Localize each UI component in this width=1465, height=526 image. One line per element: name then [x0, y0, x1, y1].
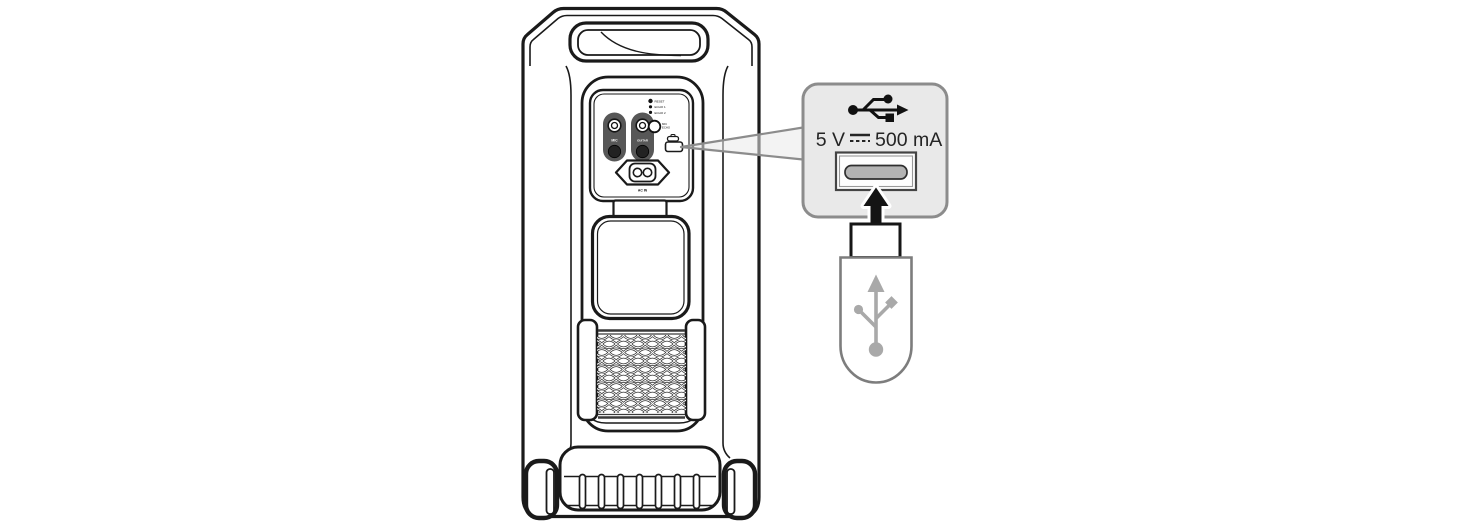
mic-jack-label: MIC: [611, 138, 618, 142]
net-mesh: [597, 335, 686, 413]
indicator-label-3: ECHO 2: [655, 111, 667, 115]
net-rail-left: [578, 320, 597, 420]
reset-icon: [648, 99, 652, 103]
speaker-rear-view: MIC GUITAR RESET ECHO 1 ECHO 2 MIC: [523, 9, 759, 519]
rating-current: 500 mA: [875, 129, 942, 151]
usb-flash-drive: [841, 224, 912, 383]
net-rail-right: [686, 320, 705, 420]
cord-net-pocket: [578, 320, 705, 420]
wheel-left: [526, 461, 557, 518]
illustration-canvas: MIC GUITAR RESET ECHO 1 ECHO 2 MIC: [0, 0, 1465, 526]
carry-handle: [570, 23, 708, 61]
guitar-vol-hole: [636, 145, 648, 157]
compartment-door: [593, 201, 690, 319]
mic-jack-group: MIC: [603, 113, 626, 162]
usb-port-slot: [845, 166, 907, 180]
guitar-jack-group: GUITAR: [631, 113, 654, 162]
usb-rating-label: 5 V 500 mA: [816, 129, 942, 151]
usb-connection-diagram: MIC GUITAR RESET ECHO 1 ECHO 2 MIC: [0, 0, 1465, 526]
mic-echo-knob: [649, 121, 661, 133]
mic-echo-label-2: ECHO: [662, 126, 671, 130]
wheel-right: [724, 461, 755, 518]
guitar-jack-label: GUITAR: [637, 138, 649, 142]
usb-port: [836, 153, 916, 191]
rating-voltage: 5 V: [816, 129, 845, 151]
indicator-label-1: RESET: [655, 100, 665, 104]
ac-in-label: AC IN: [638, 189, 648, 193]
drive-connector: [851, 224, 900, 258]
mic-vol-hole: [608, 145, 620, 157]
echo1-led-icon: [649, 105, 652, 108]
indicator-label-2: ECHO 1: [655, 105, 667, 109]
echo2-led-icon: [649, 111, 652, 114]
connection-panel: MIC GUITAR RESET ECHO 1 ECHO 2 MIC: [590, 90, 693, 201]
door-latch-tab: [614, 201, 667, 218]
bottom-bumper: [560, 447, 720, 510]
